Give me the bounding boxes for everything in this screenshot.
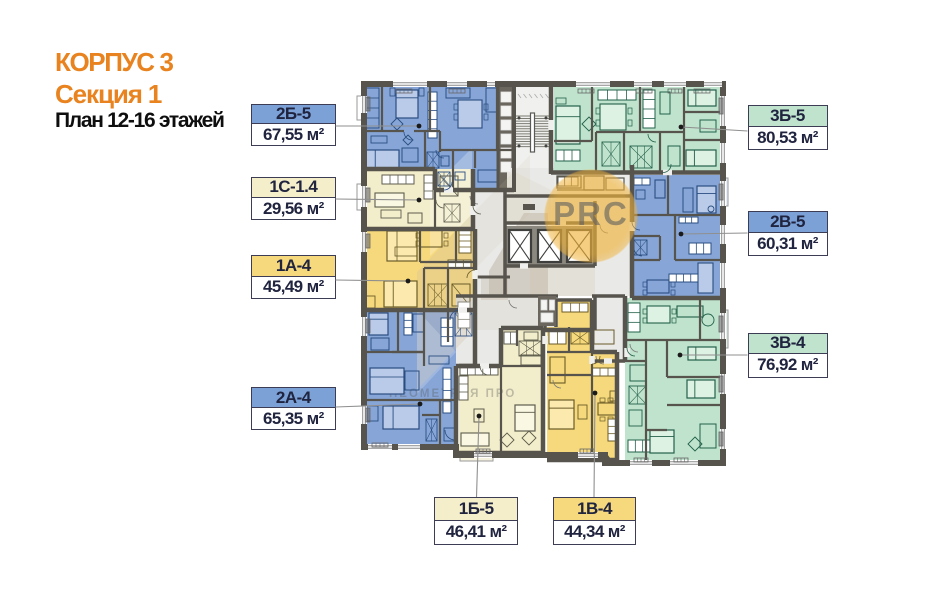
svg-text:PRC: PRC bbox=[553, 195, 629, 232]
